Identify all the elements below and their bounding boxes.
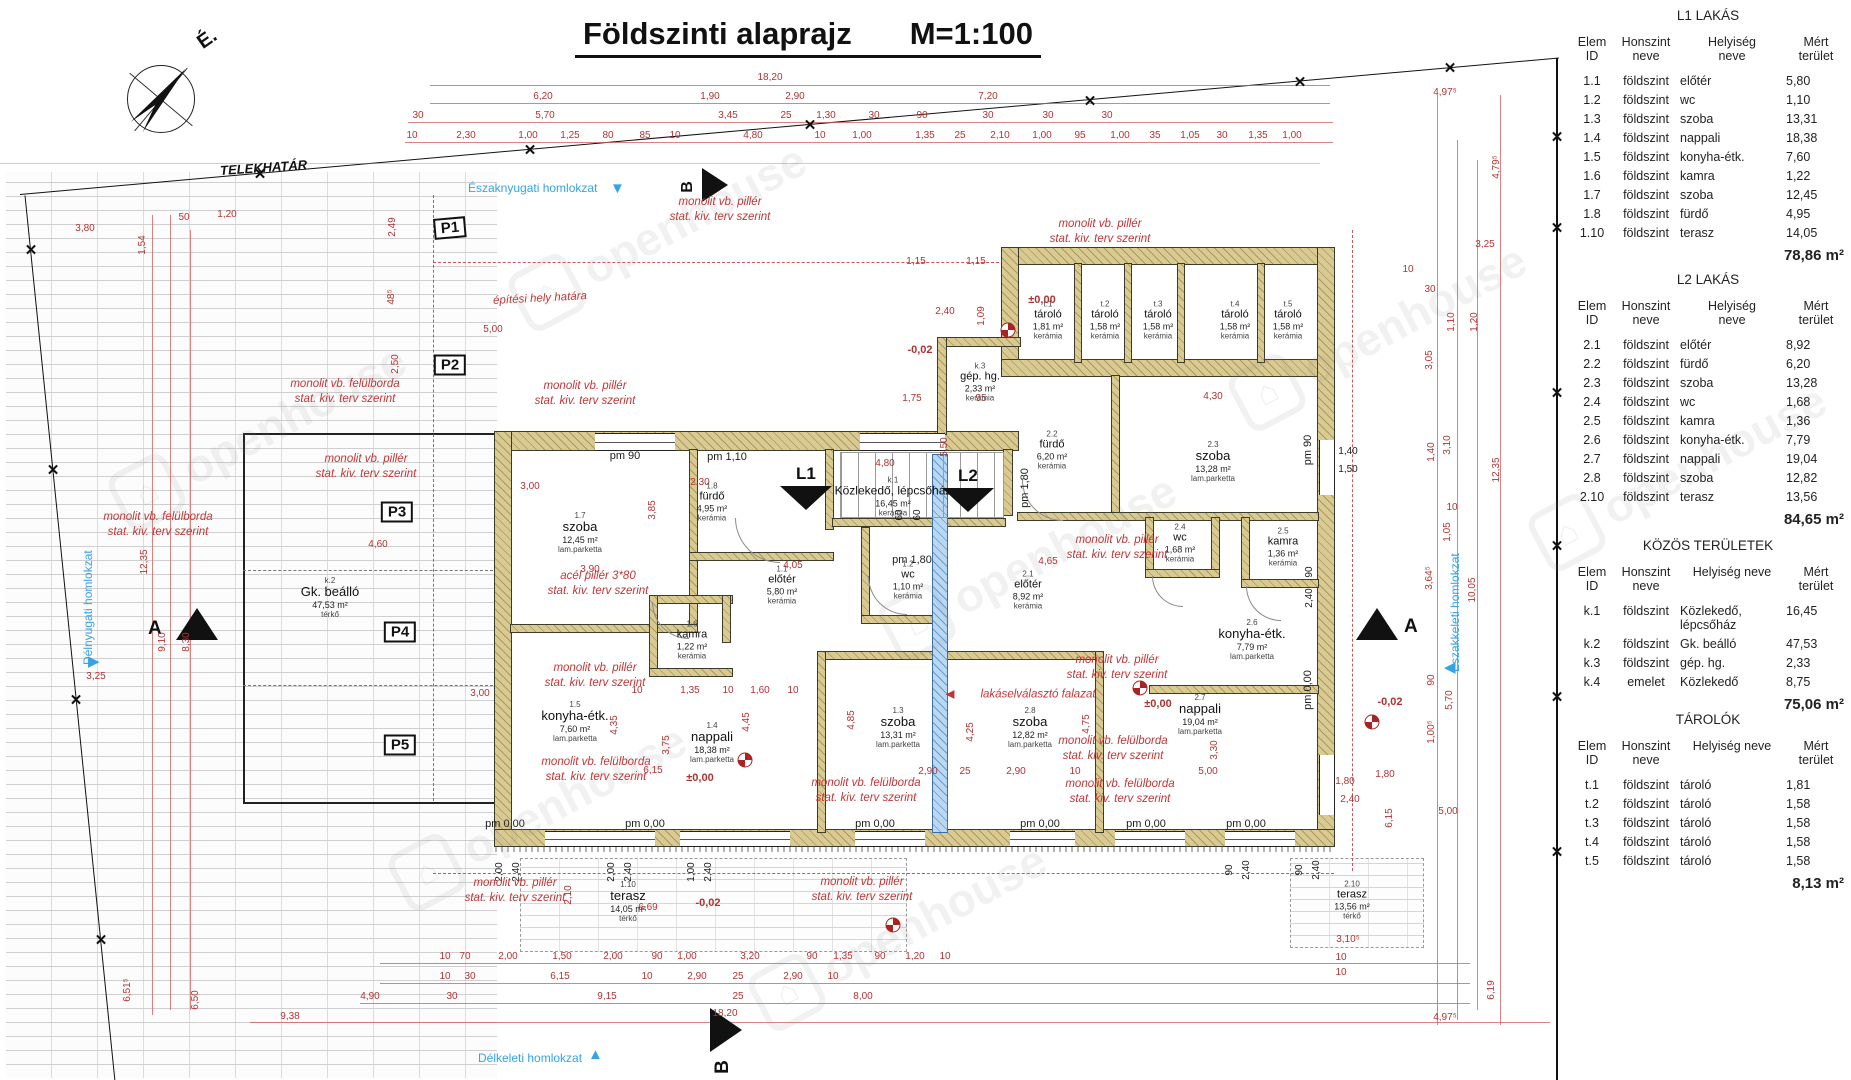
parapet-label: pm 90 <box>1302 435 1314 466</box>
room-rfloor: térkő <box>610 915 646 924</box>
dimension-label: 3,05 <box>1425 350 1435 369</box>
table-cell: 2.10 <box>1572 490 1612 504</box>
boundary-x-mark: ✕ <box>95 931 108 949</box>
table-row: 1.6földszintkamra1,22 <box>1572 166 1844 185</box>
room-rfloor: kerámia <box>1143 331 1174 340</box>
room-rfloor: kerámia <box>697 513 728 522</box>
dim-line <box>430 103 1330 104</box>
dimension-label: 5,70 <box>535 111 554 121</box>
level-label: -0,02 <box>695 897 720 909</box>
dimension-label: 1,15 <box>906 257 925 267</box>
dimension-label: 1,35 <box>680 686 699 696</box>
room-rfloor: kerámia <box>1220 331 1251 340</box>
table-cell: előtér <box>1680 74 1784 88</box>
table-cell: konyha-étk. <box>1680 150 1784 164</box>
dimension-label: 3,00 <box>470 689 489 699</box>
room-label-2.10: 2.10terasz13,56 m²térkő <box>1334 879 1370 920</box>
table-header-cell: Helyiség neve <box>1680 35 1784 63</box>
partition-wall <box>1004 450 1012 515</box>
table-cell: földszint <box>1614 854 1678 868</box>
table-cell: földszint <box>1614 207 1678 221</box>
triangle-up-icon: ▲ <box>588 1046 603 1063</box>
table-header-cell: Elem ID <box>1572 739 1612 767</box>
dimension-label: 85 <box>639 131 650 141</box>
table-row: 1.8földszintfürdő4,95 <box>1572 204 1844 223</box>
room-rname: Gk. beálló <box>301 585 360 600</box>
table-cell: 4,95 <box>1786 207 1846 221</box>
dimension-label: 30 <box>446 992 457 1002</box>
table-cell: földszint <box>1614 338 1678 352</box>
parapet-label: pm 0,00 <box>855 818 895 830</box>
triangle-right-icon: ▶ <box>88 652 100 670</box>
table-cell: 2,33 <box>1786 656 1846 670</box>
annotation-line: stat. kiv. terv szerint <box>1050 232 1151 247</box>
dimension-label: 8,30 <box>182 632 192 651</box>
dimension-label: 3,10 <box>1443 435 1453 454</box>
dimension-label: 90 <box>1305 566 1315 577</box>
room-rarea: 1,81 m² <box>1033 321 1064 331</box>
wall <box>1002 248 1018 376</box>
annotation-line: stat. kiv. terv szerint <box>1067 668 1168 683</box>
dimension-label: 18,20 <box>757 73 782 83</box>
room-label-1.7: 1.7szoba12,45 m²lam.parketta <box>558 511 602 555</box>
table-cell: terasz <box>1680 226 1784 240</box>
dimension-label: 1,60 <box>750 686 769 696</box>
room-rarea: 13,28 m² <box>1191 464 1235 474</box>
dimension-label: 10 <box>406 131 417 141</box>
dimension-label: 10 <box>939 952 950 962</box>
dimension-label: 4,97⁵ <box>1433 1013 1457 1023</box>
table-cell: földszint <box>1614 188 1678 202</box>
dimension-label: 2,00 <box>607 862 617 881</box>
table-cell: földszint <box>1614 395 1678 409</box>
table-row: 2.3földszintszoba13,28 <box>1572 373 1844 392</box>
dimension-label: 1,50 <box>1338 465 1357 475</box>
dimension-label: 1,35 <box>915 131 934 141</box>
table-cell: földszint <box>1614 471 1678 485</box>
table-cell: 6,20 <box>1786 357 1846 371</box>
table-header-cell: Honszint neve <box>1614 739 1678 767</box>
table-cell: földszint <box>1614 131 1678 145</box>
dimension-label: 1,15 <box>966 257 985 267</box>
dim-line <box>250 1022 1550 1023</box>
dimension-label: 6,50 <box>191 990 201 1009</box>
dim-line <box>0 163 1320 164</box>
dimension-label: 4,79⁵ <box>1492 155 1502 179</box>
dimension-label: 25 <box>732 972 743 982</box>
table-row: t.3földszinttároló1,58 <box>1572 813 1844 832</box>
dimension-label: 1,20 <box>217 210 236 220</box>
table-cell: 14,05 <box>1786 226 1846 240</box>
dimension-label: 1,50 <box>552 952 571 962</box>
window <box>1225 831 1295 847</box>
table-header-cell: Mért terület <box>1786 299 1846 327</box>
door-arc <box>1246 586 1281 621</box>
table-cell: földszint <box>1614 797 1678 811</box>
table-cell: 2.2 <box>1572 357 1612 371</box>
dimension-label: 1,40 <box>1427 442 1437 461</box>
dimension-label: 1,00 <box>1282 131 1301 141</box>
boundary-x-mark: ✕ <box>1084 92 1097 110</box>
dimension-label: 8,00 <box>853 992 872 1002</box>
room-rname: tároló <box>1273 309 1304 322</box>
boundary-x-mark: ✕ <box>1551 128 1564 146</box>
room-label-k.1: k.1Közlekedő, lépcsőház16,45 m²kerámia <box>835 476 952 519</box>
dimension-label: 2,40 <box>1340 795 1359 805</box>
dimension-label: 9,10 <box>158 632 168 651</box>
annotation-pillar: monolit vb. pillérstat. kiv. terv szerin… <box>535 379 636 409</box>
parapet-label: pm 1,80 <box>1019 468 1031 508</box>
table-row: t.1földszinttároló1,81 <box>1572 775 1844 794</box>
dimension-label: 10 <box>1335 968 1346 978</box>
room-rname: konyha-étk. <box>1218 627 1285 642</box>
table-cell: földszint <box>1614 452 1678 466</box>
table-header-cell: Elem ID <box>1572 35 1612 63</box>
carport-outline <box>243 433 497 804</box>
room-label-t.2: t.2tároló1,58 m²kerámia <box>1090 299 1121 340</box>
table-cell: 1,36 <box>1786 414 1846 428</box>
annotation-line: monolit vb. felülborda <box>1065 777 1174 792</box>
dimension-label: 9,15 <box>597 992 616 1002</box>
table-title: L1 LAKÁS <box>1572 8 1844 23</box>
room-rarea: 5,80 m² <box>767 586 798 596</box>
room-rfloor: lam.parketta <box>1008 741 1052 750</box>
table-header-cell: Elem ID <box>1572 299 1612 327</box>
table-cell: kamra <box>1680 169 1784 183</box>
dimension-label: 90 <box>1427 674 1437 685</box>
room-rarea: 12,45 m² <box>558 535 602 545</box>
table-cell: terasz <box>1680 490 1784 504</box>
dimension-label: 1,00 <box>1110 131 1129 141</box>
dimension-label: 2,00 <box>498 952 517 962</box>
annotation-line: stat. kiv. terv szerint <box>548 584 649 599</box>
annotation-line: monolit vb. felülborda <box>811 776 920 791</box>
title-scale: M=1:100 <box>910 16 1033 52</box>
room-label-2.5: 2.5kamra1,36 m²kerámia <box>1268 526 1299 567</box>
room-rarea: 14,05 m² <box>610 904 646 914</box>
table-row: t.4földszinttároló1,58 <box>1572 832 1844 851</box>
annotation-line: lakáselválasztó falazat <box>980 688 1095 703</box>
table-title: L2 LAKÁS <box>1572 272 1844 287</box>
dimension-label: 2,30 <box>456 131 475 141</box>
table-cell: Közlekedő <box>1680 675 1784 689</box>
room-rname: terasz <box>610 889 646 904</box>
annotation-line: stat. kiv. terv szerint <box>103 525 212 540</box>
table-cell: földszint <box>1614 112 1678 126</box>
annotation-beam: monolit vb. felülbordastat. kiv. terv sz… <box>811 776 920 806</box>
room-label-k.3: k.3gép. hg.2,33 m²kerámia <box>960 361 1000 402</box>
dimension-label: 2,40 <box>1242 860 1252 879</box>
room-label-1.8: 1.8fürdő4,95 m²kerámia <box>697 481 728 522</box>
dimension-label: 1,75 <box>902 394 921 404</box>
level-label: ±0,00 <box>1144 698 1171 710</box>
partition-wall <box>1212 518 1219 574</box>
room-rname: szoba <box>1008 715 1052 730</box>
window <box>1319 440 1335 495</box>
boundary-x-mark: ✕ <box>254 165 267 183</box>
table-cell: nappali <box>1680 131 1784 145</box>
dimension-label: 2,10 <box>990 131 1009 141</box>
table-cell: 1,58 <box>1786 816 1846 830</box>
level-label: ±0,00 <box>686 772 713 784</box>
table-cell: 1,22 <box>1786 169 1846 183</box>
table-cell: szoba <box>1680 112 1784 126</box>
table-cell: 1,58 <box>1786 835 1846 849</box>
window <box>680 831 790 847</box>
table-cell: 1.5 <box>1572 150 1612 164</box>
dimension-label: 95 <box>1074 131 1085 141</box>
table-cell: 8,75 <box>1786 675 1846 689</box>
dimension-label: 4,85 <box>847 710 857 729</box>
room-rfloor: kerámia <box>1037 461 1068 470</box>
room-label-1.6: 1.6kamra1,22 m²kerámia <box>677 619 708 660</box>
table-row: 2.5földszintkamra1,36 <box>1572 411 1844 430</box>
facade-label-southwest: Délnyugati homlokzat <box>81 525 95 665</box>
room-rname: szoba <box>558 520 602 535</box>
room-rname: szoba <box>876 715 920 730</box>
annotation-line: monolit vb. pillér <box>535 379 636 394</box>
dim-line <box>170 215 171 1010</box>
level-label: -0,02 <box>907 344 932 356</box>
table-total: 84,65 m² <box>1572 511 1844 528</box>
window <box>855 831 925 847</box>
apartment-l1-label: L1 <box>796 464 816 484</box>
annotation-pillar: monolit vb. pillérstat. kiv. terv szerin… <box>316 452 417 482</box>
annotation-arrow-icon: ◀ <box>946 688 955 703</box>
dimension-label: 10 <box>641 972 652 982</box>
room-rname: konyha-étk. <box>541 709 608 724</box>
watermark: ⌂openhouse <box>504 128 818 335</box>
table-cell: 1.10 <box>1572 226 1612 240</box>
room-rname: tároló <box>1033 309 1064 322</box>
table-cell: 13,56 <box>1786 490 1846 504</box>
table-title: KÖZÖS TERÜLETEK <box>1572 538 1844 553</box>
room-rarea: 2,33 m² <box>960 383 1000 393</box>
triangle-down-icon: ▼ <box>610 180 625 197</box>
dimension-label: 30 <box>982 111 993 121</box>
room-rname: nappali <box>690 730 734 745</box>
dimension-label: 1,05 <box>1443 522 1453 541</box>
room-label-2.3: 2.3szoba13,28 m²lam.parketta <box>1191 440 1235 484</box>
partition-wall <box>938 338 946 434</box>
room-rname: nappali <box>1178 702 1222 717</box>
dimension-label: 5,00 <box>483 325 502 335</box>
room-label-2.4: 2.4wc1,68 m²kerámia <box>1165 522 1196 563</box>
boundary-x-mark: ✕ <box>804 116 817 134</box>
room-rarea: 18,38 m² <box>690 745 734 755</box>
room-rarea: 47,53 m² <box>301 600 360 610</box>
dimension-label: 2,90 <box>1006 767 1025 777</box>
section-a-arrow <box>1356 608 1398 640</box>
area-table-l1: L1 LAKÁSElem IDHonszint neveHelyiség nev… <box>1572 8 1844 264</box>
parking-label-p4: P4 <box>384 622 416 643</box>
dimension-label: 7,20 <box>978 92 997 102</box>
table-row: 1.5földszintkonyha-étk.7,60 <box>1572 147 1844 166</box>
dimension-label: 6,20 <box>533 92 552 102</box>
table-cell: 2.7 <box>1572 452 1612 466</box>
dimension-label: 1,09 <box>977 306 987 325</box>
north-compass-icon <box>127 65 195 133</box>
annotation-beam: monolit vb. felülbordastat. kiv. terv sz… <box>1058 734 1167 764</box>
boundary-x-mark: ✕ <box>1294 73 1307 91</box>
table-cell: wc <box>1680 395 1784 409</box>
table-cell: 1.8 <box>1572 207 1612 221</box>
room-rarea: 1,68 m² <box>1165 544 1196 554</box>
room-rfloor: kerámia <box>767 596 798 605</box>
dimension-label: 1,40 <box>1338 447 1357 457</box>
table-cell: földszint <box>1614 93 1678 107</box>
dimension-label: 90 <box>1225 864 1235 875</box>
annotation-separator: lakáselválasztó falazat <box>980 688 1095 703</box>
dimension-label: 4,45 <box>742 712 752 731</box>
table-cell: t.1 <box>1572 778 1612 792</box>
room-rarea: 7,79 m² <box>1218 642 1285 652</box>
dimension-label: 2,40 <box>624 862 634 881</box>
room-rfloor: kerámia <box>835 509 952 518</box>
watermark-text: openhouse <box>573 133 815 296</box>
dimension-label: 30 <box>1101 111 1112 121</box>
dimension-label: 10 <box>439 972 450 982</box>
table-cell: szoba <box>1680 471 1784 485</box>
room-rfloor: kerámia <box>1033 331 1064 340</box>
annotation-line: monolit vb. pillér <box>316 452 417 467</box>
dimension-label: 30 <box>464 972 475 982</box>
sheet-title: Földszinti alaprajz M=1:100 <box>575 16 1041 58</box>
dim-line <box>408 122 1333 123</box>
room-rname: terasz <box>1334 889 1370 902</box>
dimension-label: 50 <box>178 213 189 223</box>
room-rarea: 6,20 m² <box>1037 451 1068 461</box>
dimension-label: 5,70 <box>1445 690 1455 709</box>
table-header-cell: Helyiség neve <box>1680 739 1784 767</box>
window <box>860 433 945 451</box>
room-rarea: 13,31 m² <box>876 730 920 740</box>
annotation-pillar: monolit vb. pillérstat. kiv. terv szerin… <box>545 661 646 691</box>
boundary-x-mark: ✕ <box>524 141 537 159</box>
table-cell: tároló <box>1680 835 1784 849</box>
table-cell: Közlekedő, lépcsőház <box>1680 604 1784 632</box>
parking-divider <box>243 685 493 686</box>
table-cell: 12,45 <box>1786 188 1846 202</box>
annotation-line: monolit vb. felülborda <box>1058 734 1167 749</box>
table-cell: földszint <box>1614 376 1678 390</box>
site-boundary-dashed <box>433 873 1334 874</box>
table-row: k.4emeletKözlekedő8,75 <box>1572 672 1844 691</box>
room-rid: t.4 <box>1220 299 1251 308</box>
room-rid: 2.2 <box>1037 429 1068 438</box>
area-table-l2: L2 LAKÁSElem IDHonszint neveHelyiség nev… <box>1572 272 1844 528</box>
room-label-2.2: 2.2fürdő6,20 m²kerámia <box>1037 429 1068 470</box>
dimension-label: 9,38 <box>280 1012 299 1022</box>
dim-line <box>380 963 1470 964</box>
room-label-1.10: 1.10terasz14,05 m²térkő <box>610 880 646 924</box>
annotation-beam: monolit vb. felülbordastat. kiv. terv sz… <box>1065 777 1174 807</box>
room-rid: 1.8 <box>697 481 728 490</box>
room-rid: k.3 <box>960 361 1000 370</box>
partition-wall <box>1075 264 1081 362</box>
table-row: t.5földszinttároló1,58 <box>1572 851 1844 870</box>
table-cell: 1.3 <box>1572 112 1612 126</box>
table-cell: földszint <box>1614 490 1678 504</box>
dimension-label: 10 <box>787 686 798 696</box>
table-row: 2.2földszintfürdő6,20 <box>1572 354 1844 373</box>
wall <box>1002 248 1334 264</box>
room-rfloor: térkő <box>1334 911 1370 920</box>
dimension-label: 4,90 <box>360 992 379 1002</box>
room-label-t.1: t.1tároló1,81 m²kerámia <box>1033 299 1064 340</box>
table-cell: tároló <box>1680 854 1784 868</box>
table-cell: 8,92 <box>1786 338 1846 352</box>
dim-line <box>405 142 1333 143</box>
table-row: 2.4földszintwc1,68 <box>1572 392 1844 411</box>
dimension-label: 1,25 <box>560 131 579 141</box>
boundary-x-mark: ✕ <box>1551 219 1564 237</box>
dimension-label: 80 <box>602 131 613 141</box>
table-header-cell: Honszint neve <box>1614 35 1678 63</box>
wall-insulation <box>495 847 1334 852</box>
partition-wall <box>1242 518 1249 584</box>
dimension-label: 35 <box>1149 131 1160 141</box>
dimension-label: 2,90 <box>918 767 937 777</box>
parking-label-p2: P2 <box>434 355 466 376</box>
table-cell: 12,82 <box>1786 471 1846 485</box>
room-rarea: 1,22 m² <box>677 641 708 651</box>
parking-divider <box>243 570 493 571</box>
room-rarea: 4,95 m² <box>697 503 728 513</box>
table-cell: előtér <box>1680 338 1784 352</box>
level-symbol-icon <box>1001 323 1016 338</box>
wall <box>495 432 511 846</box>
table-row: 1.4földszintnappali18,38 <box>1572 128 1844 147</box>
room-rfloor: lam.parketta <box>1191 475 1235 484</box>
table-cell: konyha-étk. <box>1680 433 1784 447</box>
room-rname: wc <box>1165 532 1196 545</box>
annotation-line: stat. kiv. terv szerint <box>545 676 646 691</box>
annotation-line: stat. kiv. terv szerint <box>1065 792 1174 807</box>
dimension-label: 10 <box>1069 767 1080 777</box>
dimension-label: 1,80 <box>1375 770 1394 780</box>
dimension-label: 90 <box>651 952 662 962</box>
table-header-row: Elem IDHonszint neveHelyiség neveMért te… <box>1572 35 1844 63</box>
dimension-label: 6,15 <box>1385 808 1395 827</box>
table-cell: t.3 <box>1572 816 1612 830</box>
table-cell: 2.4 <box>1572 395 1612 409</box>
dimension-label: 30 <box>1042 111 1053 121</box>
partition-wall <box>650 669 732 676</box>
dimension-label: 6,15 <box>550 972 569 982</box>
parapet-label: pm 90 <box>610 450 641 462</box>
table-cell: 7,79 <box>1786 433 1846 447</box>
facade-label-southeast: Délkeleti homlokzat <box>478 1051 582 1065</box>
table-cell: 1,10 <box>1786 93 1846 107</box>
room-rid: 2.10 <box>1334 879 1370 888</box>
level-symbol-icon <box>738 753 753 768</box>
table-cell: földszint <box>1614 74 1678 88</box>
table-cell: Gk. beálló <box>1680 637 1784 651</box>
room-rid: 1.6 <box>677 619 708 628</box>
room-rid: 2.5 <box>1268 526 1299 535</box>
parking-label-p1: P1 <box>433 216 467 240</box>
room-label-1.5: 1.5konyha-étk.7,60 m²lam.parketta <box>541 700 608 744</box>
table-cell: szoba <box>1680 376 1784 390</box>
dimension-label: 90 <box>916 111 927 121</box>
table-cell: fürdő <box>1680 207 1784 221</box>
table-row: 1.7földszintszoba12,45 <box>1572 185 1844 204</box>
room-rfloor: lam.parketta <box>541 735 608 744</box>
table-cell: 1,81 <box>1786 778 1846 792</box>
room-rname: előtér <box>767 574 798 587</box>
dimension-label: 1,30 <box>816 111 835 121</box>
